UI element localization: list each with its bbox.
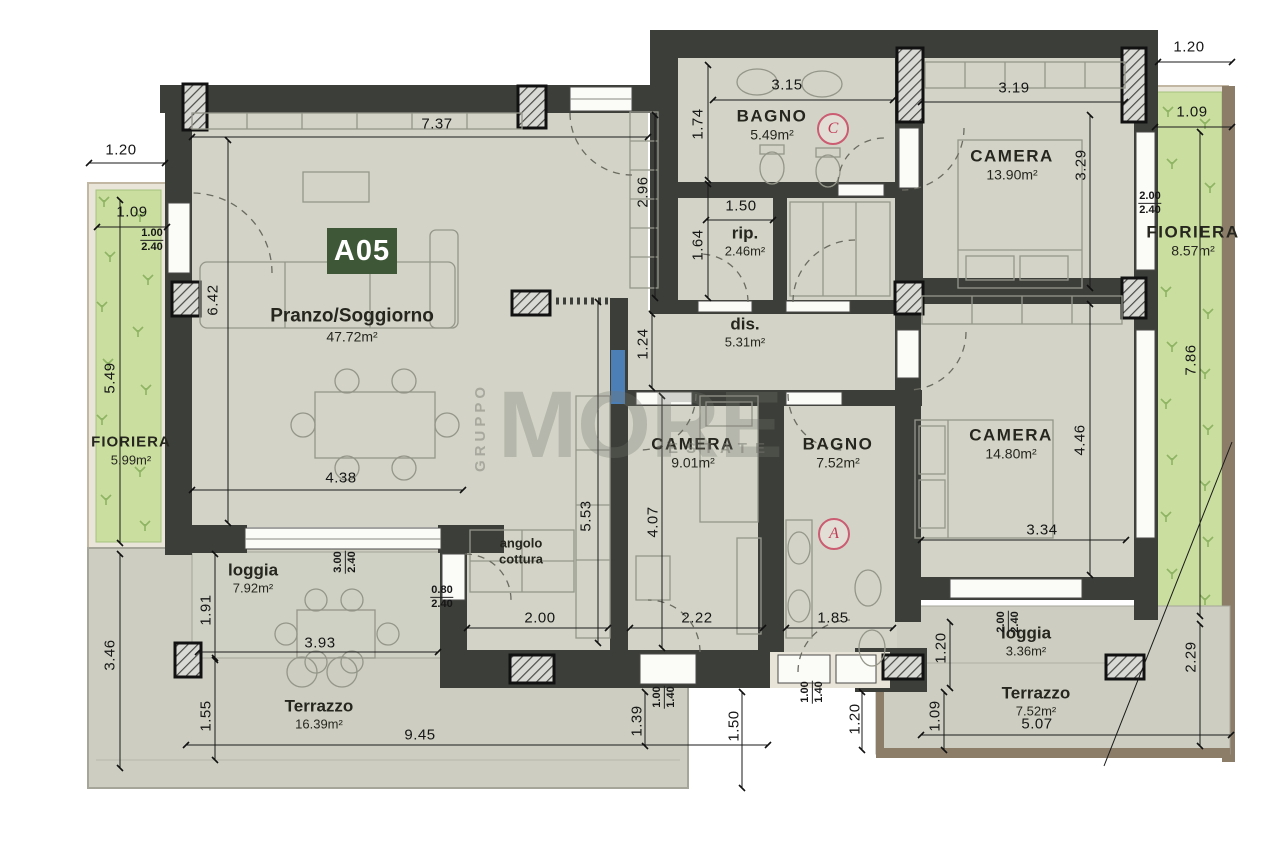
room-name: Pranzo/Soggiorno (270, 304, 434, 328)
dimension-label: 1.85 (817, 610, 848, 627)
room-name: Terrazzo (1002, 682, 1071, 703)
window-height: 2.40 (346, 550, 359, 573)
window-size-label: 2.002.40 (1138, 190, 1161, 216)
dimension-label: 3.46 (102, 639, 119, 670)
watermark-gruppo: GRUPPO (472, 372, 490, 482)
dimension-label: 1.50 (725, 198, 756, 215)
room-area: 8.57m² (1146, 243, 1239, 261)
window-height: 2.40 (140, 241, 163, 254)
room-name: angolo cottura (499, 535, 543, 566)
room-name: dis. (725, 313, 765, 334)
dimension-label: 4.38 (325, 470, 356, 487)
room-area: 5.99m² (91, 452, 171, 468)
dimension-label: 1.24 (635, 328, 652, 359)
dimension-label: 1.20 (933, 632, 950, 663)
watermark-more: MORE (498, 378, 798, 473)
door-marker-A: A (818, 518, 850, 550)
window-size-label: 2.002.40 (995, 610, 1021, 633)
room-label: loggia7.92m² (228, 559, 278, 597)
dimension-label: 1.39 (629, 705, 646, 736)
room-label: BAGNO7.52m² (803, 434, 874, 473)
dimension-label: 1.09 (1176, 104, 1207, 121)
dimension-label: 2.29 (1183, 641, 1200, 672)
dimension-label: 3.19 (998, 80, 1029, 97)
room-name: BAGNO (737, 106, 808, 127)
window-height: 1.40 (813, 680, 826, 703)
window-size-label: 0.802.40 (430, 584, 453, 610)
dimension-label: 9.45 (404, 727, 435, 744)
room-label: rip.2.46m² (725, 222, 765, 260)
dimension-label: 1.09 (116, 204, 147, 221)
room-area: 47.72m² (270, 328, 434, 346)
dimension-label: 6.42 (205, 284, 222, 315)
room-name: loggia (228, 559, 278, 580)
window-size-label: 1.001.40 (799, 680, 825, 703)
room-label: Pranzo/Soggiorno47.72m² (270, 304, 434, 345)
window-width: 1.00 (799, 680, 813, 703)
dimension-label: 1.55 (198, 700, 215, 731)
dimension-label: 1.20 (847, 703, 864, 734)
window-height: 1.40 (665, 685, 678, 708)
room-label: dis.5.31m² (725, 313, 765, 351)
room-area: 16.39m² (285, 717, 354, 733)
floor-plan: BAGNO5.49m²CAMERA13.90m²FIORIERA8.57m²ri… (0, 0, 1278, 850)
watermark-estate: ESTATE (668, 440, 773, 457)
room-name: FIORIERA (91, 434, 171, 453)
dimension-label: 1.91 (198, 594, 215, 625)
dimension-label: 5.53 (578, 500, 595, 531)
room-area: 14.80m² (969, 446, 1053, 464)
room-label: Terrazzo7.52m² (1002, 682, 1071, 720)
room-label: CAMERA14.80m² (969, 425, 1053, 464)
dimension-label: 5.49 (102, 362, 119, 393)
dimension-label: 2.00 (524, 610, 555, 627)
room-name: rip. (725, 222, 765, 243)
dimension-label: 3.15 (771, 77, 802, 94)
dimension-label: 1.20 (1173, 39, 1204, 56)
door-marker-C: C (817, 113, 849, 145)
room-label: FIORIERA8.57m² (1146, 222, 1239, 261)
dimension-label: 7.37 (421, 116, 452, 133)
window-size-label: 1.002.40 (140, 227, 163, 253)
dimension-label: 1.20 (105, 142, 136, 159)
dimension-label: 1.64 (690, 229, 707, 260)
room-name: CAMERA (970, 146, 1054, 167)
dimension-label: 1.50 (726, 710, 743, 741)
window-width: 1.00 (651, 685, 665, 708)
window-size-label: 3.002.40 (332, 550, 358, 573)
window-width: 0.80 (430, 584, 453, 598)
dimension-label: 3.34 (1026, 522, 1057, 539)
room-area: 5.31m² (725, 335, 765, 351)
dimension-label: 4.46 (1072, 424, 1089, 455)
dimension-label: 2.96 (635, 176, 652, 207)
window-width: 1.00 (140, 227, 163, 241)
dimension-label: 5.07 (1021, 716, 1052, 733)
dimension-label: 2.22 (681, 610, 712, 627)
room-label: FIORIERA5.99m² (91, 434, 171, 469)
room-area: 7.92m² (228, 581, 278, 597)
window-height: 2.40 (1009, 610, 1022, 633)
room-label: CAMERA13.90m² (970, 146, 1054, 185)
room-label: BAGNO5.49m² (737, 106, 808, 145)
dimension-label: 1.09 (927, 700, 944, 731)
room-area: 2.46m² (725, 244, 765, 260)
window-height: 2.40 (430, 598, 453, 611)
dimension-label: 3.29 (1073, 149, 1090, 180)
room-area: 3.36m² (1001, 644, 1051, 660)
window-height: 2.40 (1138, 204, 1161, 217)
room-name: Terrazzo (285, 695, 354, 716)
window-width: 3.00 (332, 550, 346, 573)
dimension-label: 3.93 (304, 635, 335, 652)
dimension-label: 7.86 (1183, 344, 1200, 375)
room-area: 7.52m² (803, 455, 874, 473)
window-width: 2.00 (1138, 190, 1161, 204)
room-name: FIORIERA (1146, 222, 1239, 243)
room-name: BAGNO (803, 434, 874, 455)
unit-badge: A05 (327, 228, 397, 274)
dimension-label: 4.07 (645, 506, 662, 537)
window-size-label: 1.001.40 (651, 685, 677, 708)
room-label: Terrazzo16.39m² (285, 695, 354, 733)
room-area: 5.49m² (737, 127, 808, 145)
dimension-label: 1.74 (690, 108, 707, 139)
room-area: 13.90m² (970, 167, 1054, 185)
room-label: angolo cottura (499, 535, 543, 566)
room-name: CAMERA (969, 425, 1053, 446)
window-width: 2.00 (995, 610, 1009, 633)
